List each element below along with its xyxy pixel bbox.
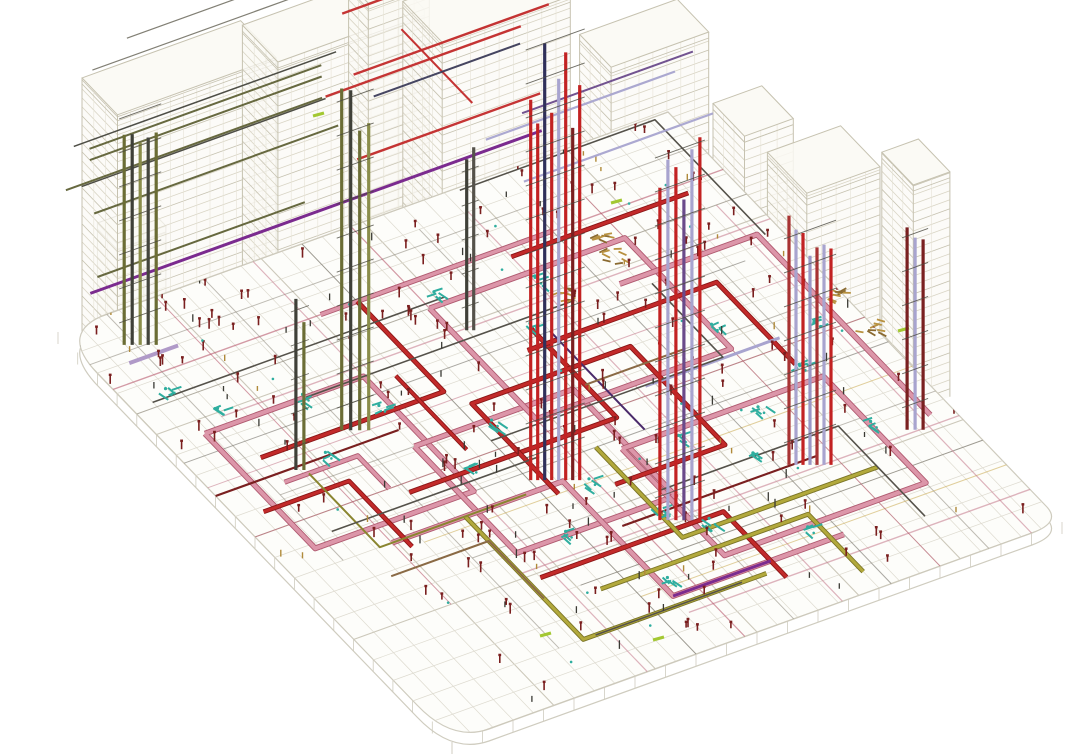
- bim-mep-model-rendering: [0, 0, 1080, 755]
- mep-model-viewport: [0, 0, 1080, 755]
